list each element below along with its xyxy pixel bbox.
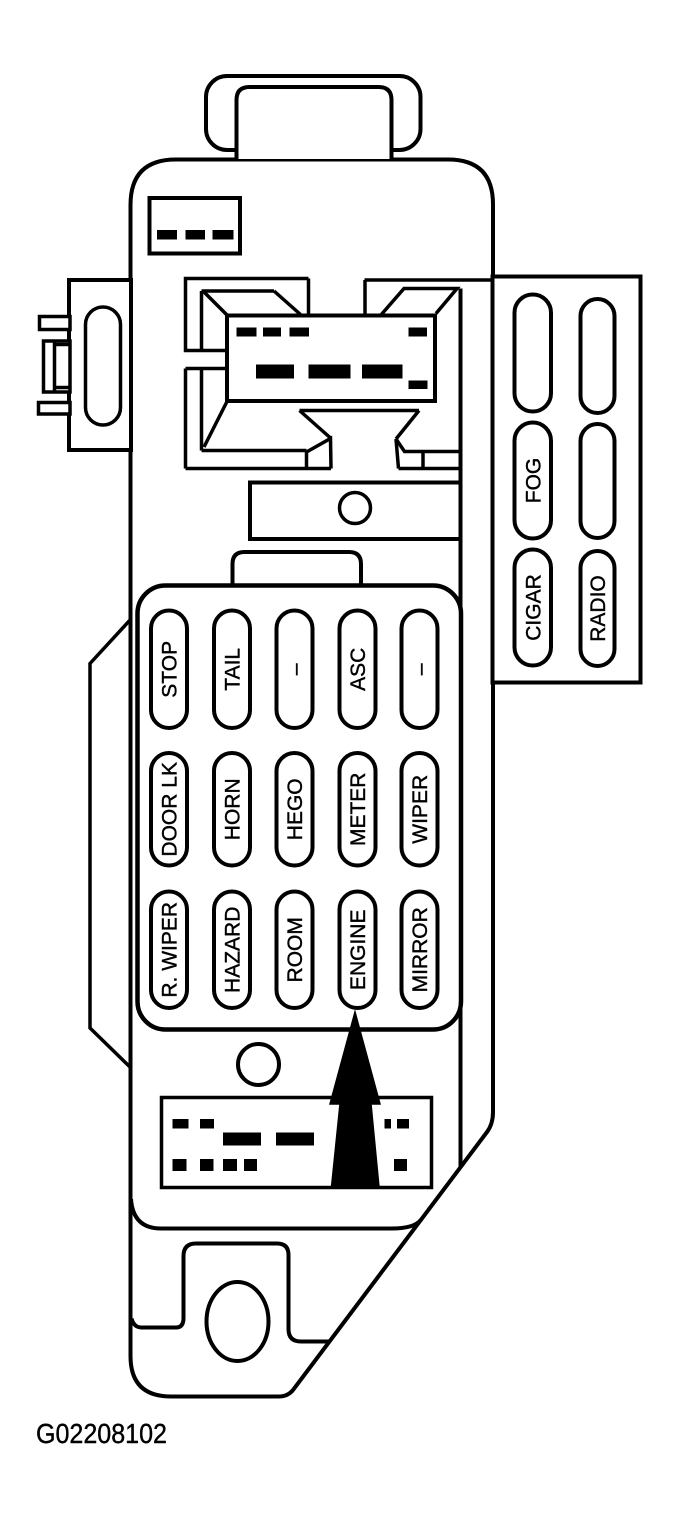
svg-text:ROOM: ROOM [284,917,307,982]
svg-text:CIGAR: CIGAR [522,574,545,641]
svg-text:HORN: HORN [222,778,245,840]
svg-text:METER: METER [347,773,370,847]
svg-text:ENGINE: ENGINE [347,910,370,991]
svg-text:R. WIPER: R. WIPER [159,902,182,998]
svg-text:WIPER: WIPER [409,775,432,844]
svg-text:ASC: ASC [347,648,370,691]
svg-text:–: – [284,663,307,675]
svg-text:TAIL: TAIL [222,648,245,691]
svg-text:G02208102: G02208102 [36,1418,167,1449]
svg-text:FOG: FOG [522,458,545,504]
svg-text:–: – [409,663,432,675]
svg-text:MIRROR: MIRROR [409,907,432,992]
svg-text:HEGO: HEGO [284,778,307,840]
svg-text:STOP: STOP [159,641,182,698]
svg-text:HAZARD: HAZARD [222,907,245,993]
svg-text:RADIO: RADIO [587,575,610,642]
svg-text:DOOR LK: DOOR LK [159,762,182,857]
